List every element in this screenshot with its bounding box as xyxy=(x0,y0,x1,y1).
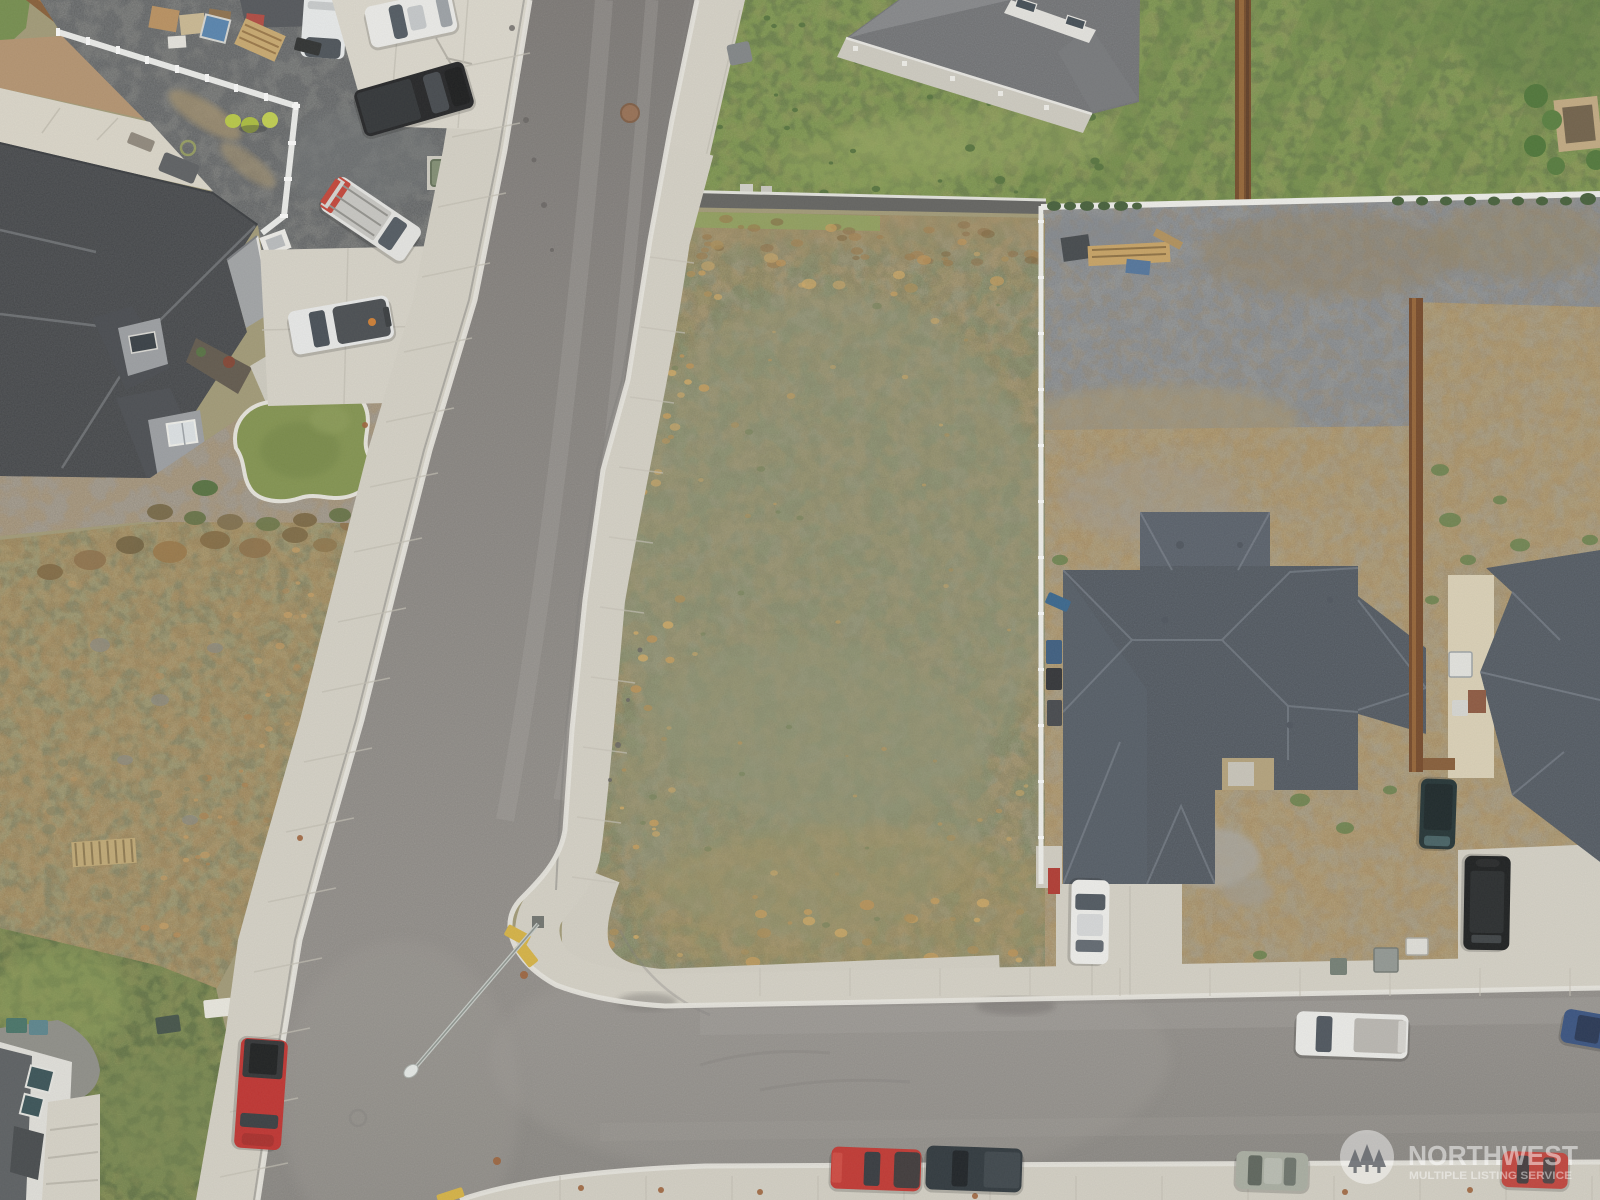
svg-text:MULTIPLE LISTING SERVICE: MULTIPLE LISTING SERVICE xyxy=(1409,1170,1572,1182)
svg-text:NORTHWEST: NORTHWEST xyxy=(1408,1140,1578,1171)
